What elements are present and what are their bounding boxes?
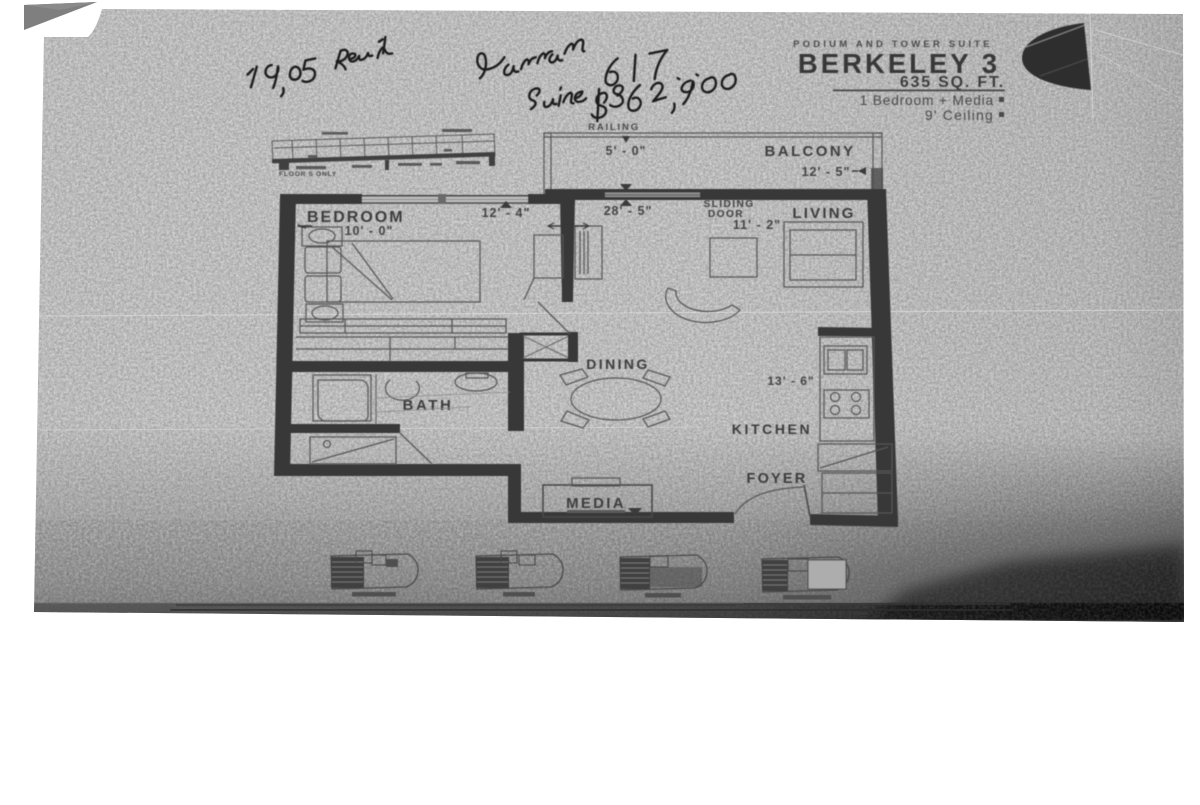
svg-text:FLOOR 5 ONLY: FLOOR 5 ONLY	[279, 171, 337, 178]
svg-text:9' Ceiling: 9' Ceiling	[925, 107, 994, 123]
svg-text:FOYER: FOYER	[747, 471, 808, 487]
svg-text:MEDIA: MEDIA	[566, 495, 626, 512]
svg-text:KITCHEN: KITCHEN	[732, 421, 812, 437]
svg-text:28' - 5": 28' - 5"	[604, 204, 653, 218]
svg-text:635 SQ. FT.: 635 SQ. FT.	[900, 74, 1005, 91]
svg-text:13' - 6": 13' - 6"	[767, 374, 814, 388]
svg-text:DINING: DINING	[586, 356, 649, 372]
svg-text:5' - 0": 5' - 0"	[606, 144, 647, 158]
svg-text:RAILING: RAILING	[588, 122, 640, 133]
svg-text:10' - 0": 10' - 0"	[345, 224, 394, 238]
svg-text:11' - 2": 11' - 2"	[733, 218, 781, 232]
svg-text:12' - 4": 12' - 4"	[482, 206, 531, 220]
svg-text:1 Bedroom + Media: 1 Bedroom + Media	[860, 93, 994, 108]
svg-text:LIVING: LIVING	[792, 205, 855, 222]
svg-text:12' - 5": 12' - 5"	[802, 165, 851, 179]
svg-text:BALCONY: BALCONY	[765, 143, 856, 160]
